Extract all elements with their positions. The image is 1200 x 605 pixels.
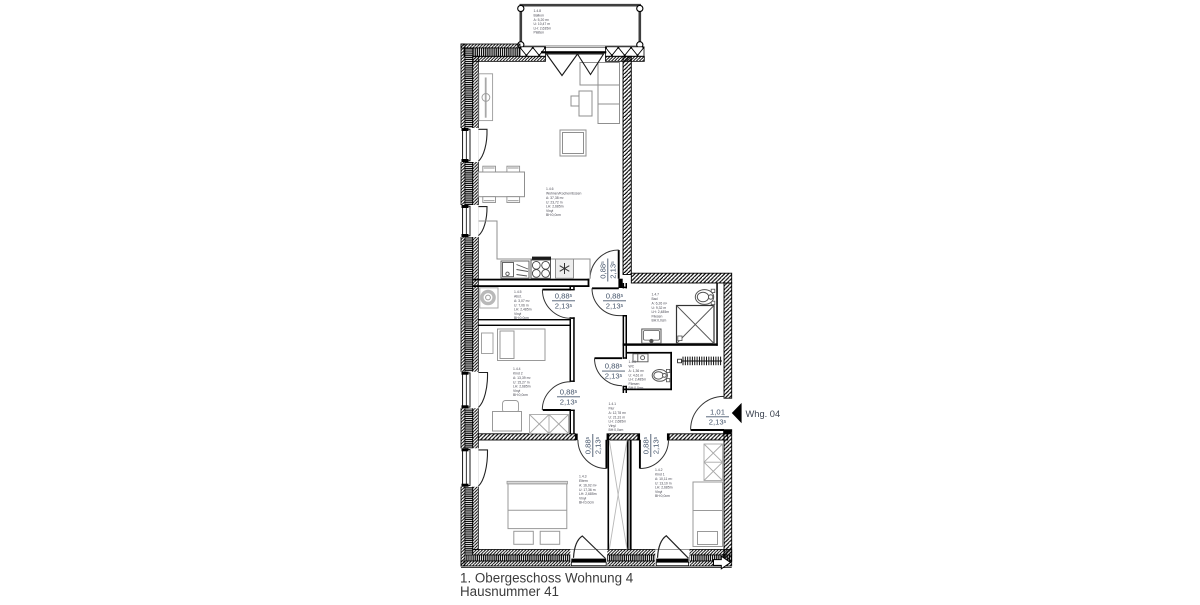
svg-text:1.4.6: 1.4.6: [546, 187, 554, 191]
svg-text:Kind 1: Kind 1: [655, 473, 665, 477]
svg-text:BH:0,0cm: BH:0,0cm: [546, 213, 561, 217]
svg-text:Eltern: Eltern: [579, 479, 588, 483]
svg-text:BH:0,0cm: BH:0,0cm: [514, 316, 529, 320]
svg-text:Abst.: Abst.: [514, 295, 522, 299]
svg-text:1.4.4: 1.4.4: [513, 367, 521, 371]
svg-text:Whg. 04: Whg. 04: [746, 409, 781, 419]
svg-text:1.4.5: 1.4.5: [514, 290, 522, 294]
svg-text:1.4.8: 1.4.8: [534, 9, 542, 13]
svg-text:BH:0,0cm: BH:0,0cm: [609, 428, 624, 432]
svg-text:Bad: Bad: [652, 297, 658, 301]
svg-text:WC: WC: [629, 365, 635, 369]
svg-text:1.4.7: 1.4.7: [652, 293, 660, 297]
svg-text:BH:0,0cm: BH:0,0cm: [579, 501, 594, 505]
svg-text:Platten: Platten: [534, 31, 545, 35]
svg-text:Balkon: Balkon: [534, 14, 544, 18]
svg-text:BH:0,0cm: BH:0,0cm: [513, 393, 528, 397]
svg-text:BH:0,0cm: BH:0,0cm: [652, 319, 667, 323]
svg-text:Wohnen/Kochen/Essen: Wohnen/Kochen/Essen: [546, 192, 581, 196]
svg-text:BH:0,0cm: BH:0,0cm: [629, 386, 644, 390]
svg-text:1.4.1: 1.4.1: [609, 402, 617, 406]
svg-text:BH:0,0cm: BH:0,0cm: [655, 494, 670, 498]
svg-text:1.4.9: 1.4.9: [629, 360, 637, 364]
svg-text:Hausnummer 41: Hausnummer 41: [460, 584, 559, 599]
svg-text:Flur: Flur: [609, 407, 616, 411]
svg-text:Kind 2: Kind 2: [513, 372, 523, 376]
svg-text:1.4.2: 1.4.2: [655, 468, 663, 472]
svg-text:1,01: 1,01: [710, 407, 725, 416]
svg-text:1.4.3: 1.4.3: [579, 475, 587, 479]
